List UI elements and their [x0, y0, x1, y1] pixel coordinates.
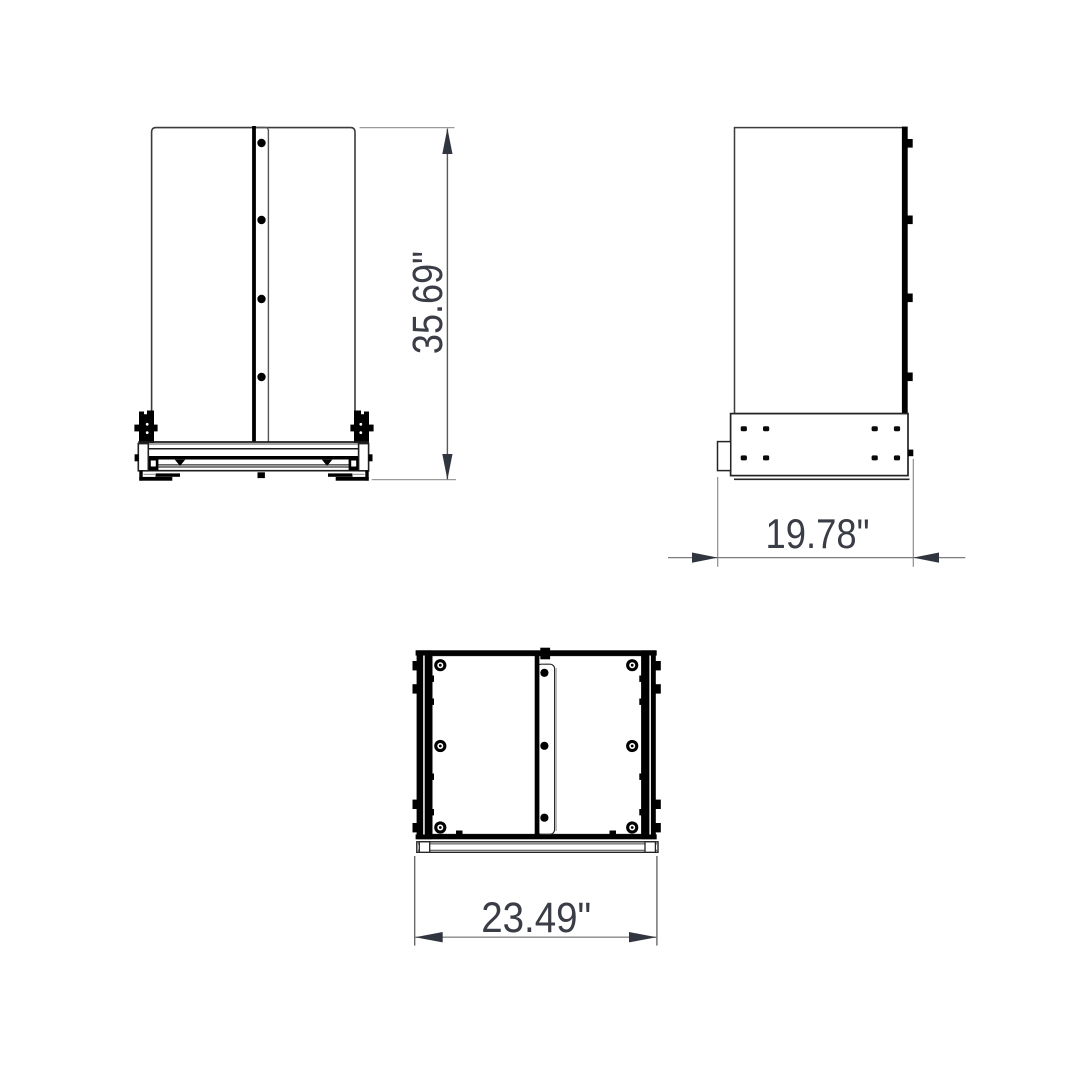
svg-text:19.78": 19.78"	[766, 510, 870, 557]
svg-text:23.49": 23.49"	[481, 895, 591, 942]
svg-text:35.69": 35.69"	[405, 251, 452, 354]
